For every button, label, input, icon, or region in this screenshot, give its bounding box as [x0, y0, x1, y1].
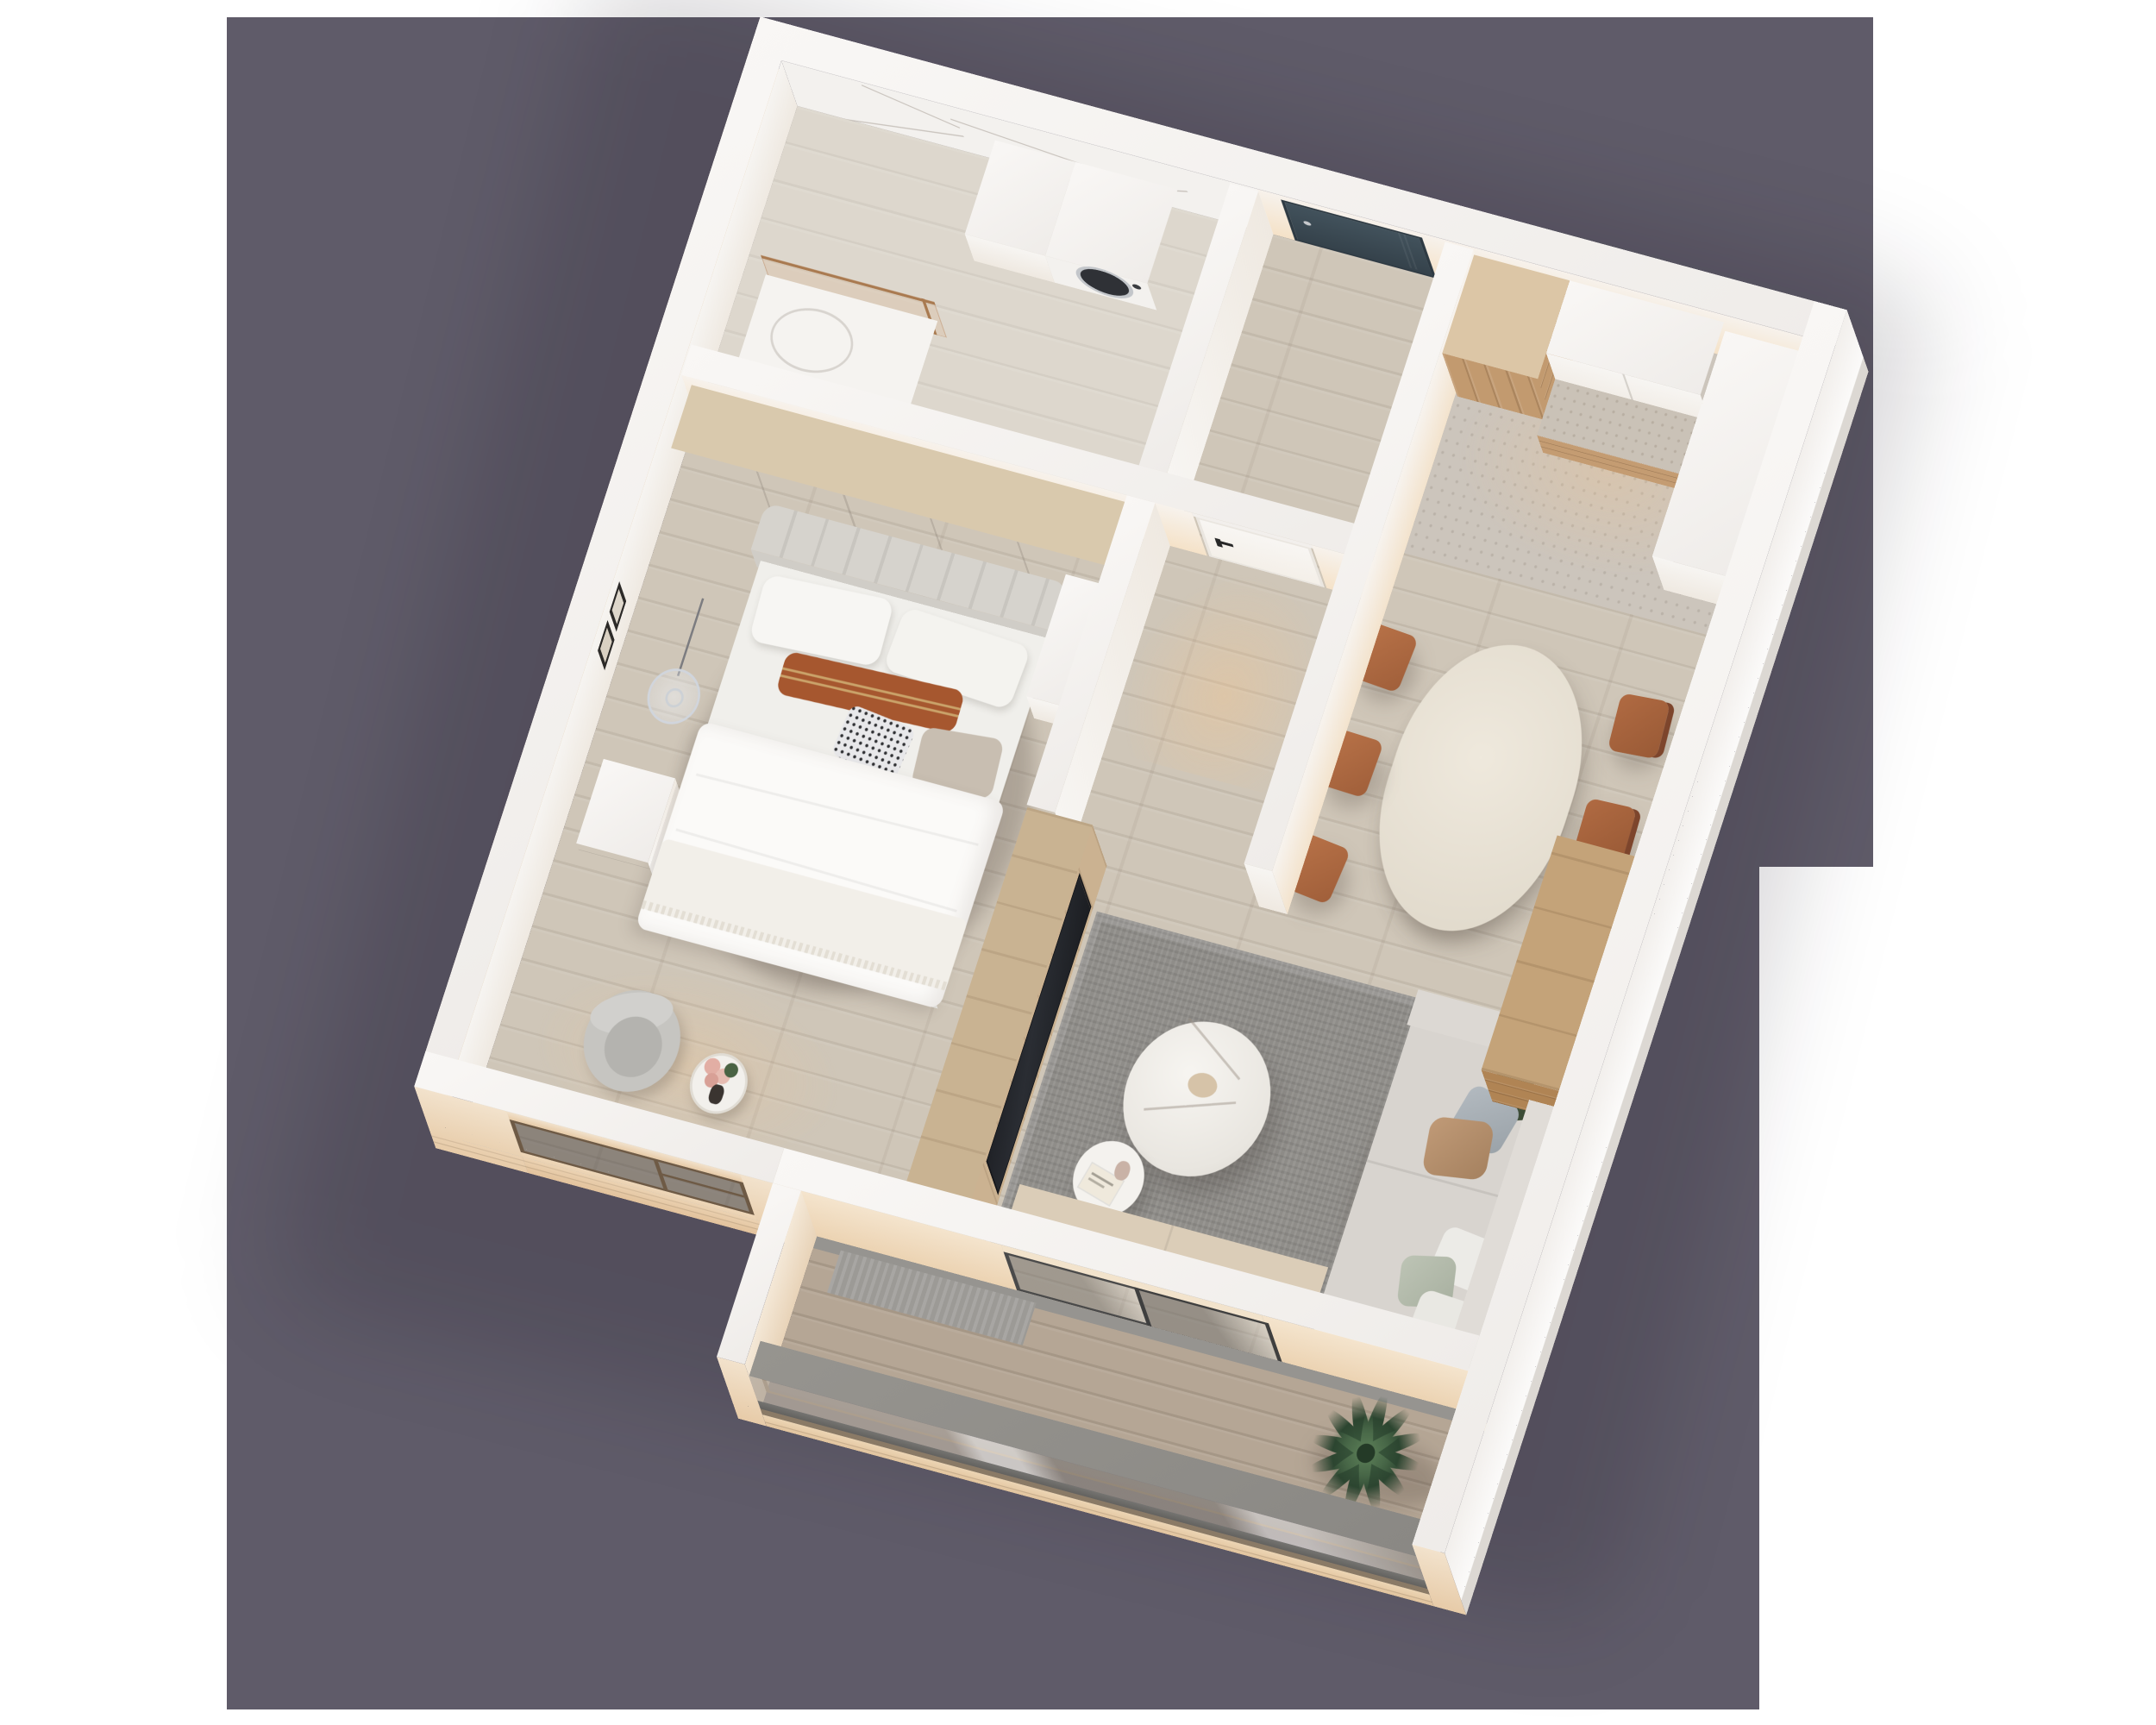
- render-canvas: [0, 0, 2156, 1725]
- scene: [0, 0, 2156, 1725]
- wall-art-frame: [610, 581, 626, 631]
- entry-door-handle: [1303, 220, 1312, 226]
- apartment-plan: [374, 62, 1863, 1599]
- pillow-tan-leather: [1421, 1116, 1495, 1181]
- marble-vein: [1144, 1101, 1236, 1111]
- coffee-table-decor: [1185, 1069, 1221, 1101]
- wall-art-frame: [598, 620, 614, 670]
- washer-dial: [1131, 284, 1142, 291]
